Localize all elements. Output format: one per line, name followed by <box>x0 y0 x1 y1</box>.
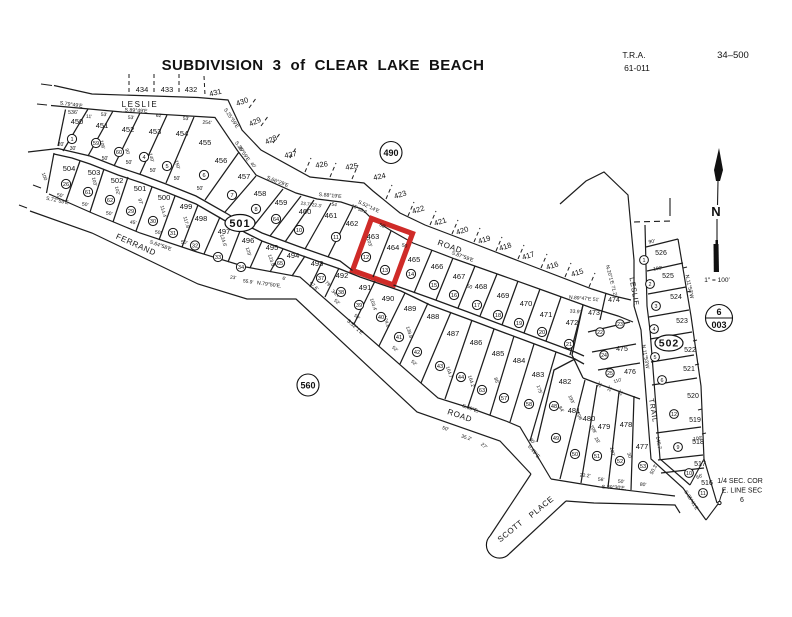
svg-text:456: 456 <box>215 156 228 165</box>
svg-text:473: 473 <box>588 310 600 317</box>
svg-text:21: 21 <box>566 342 572 348</box>
svg-text:54: 54 <box>331 202 337 209</box>
svg-text:453: 453 <box>149 127 162 136</box>
svg-text:42: 42 <box>414 350 420 356</box>
svg-text:35.2': 35.2' <box>460 434 472 443</box>
svg-text:502: 502 <box>111 176 124 185</box>
svg-text:1/4 SEC. COR: 1/4 SEC. COR <box>717 478 763 485</box>
svg-text:11: 11 <box>700 491 706 497</box>
svg-text:62': 62' <box>156 113 163 119</box>
svg-text:5: 5 <box>654 355 657 361</box>
svg-text:110': 110' <box>613 377 622 384</box>
svg-text:40: 40 <box>378 315 384 321</box>
svg-text:50: 50 <box>572 452 578 458</box>
svg-text:491: 491 <box>359 283 372 292</box>
svg-text:40': 40' <box>248 161 257 170</box>
svg-text:N.89°47'E 51': N.89°47'E 51' <box>569 295 600 304</box>
svg-text:484: 484 <box>513 356 526 365</box>
svg-text:483: 483 <box>532 370 545 379</box>
svg-text:416: 416 <box>545 259 560 271</box>
svg-text:13: 13 <box>382 268 388 274</box>
svg-text:521: 521 <box>683 366 695 373</box>
svg-text:476: 476 <box>624 369 636 376</box>
svg-text:N: N <box>711 204 720 219</box>
svg-text:100: 100 <box>40 172 48 182</box>
svg-text:22': 22' <box>596 381 603 388</box>
svg-text:499: 499 <box>180 202 193 211</box>
svg-text:20': 20' <box>58 142 65 148</box>
svg-text:003: 003 <box>711 320 726 330</box>
svg-text:150': 150' <box>173 160 181 170</box>
svg-text:420: 420 <box>455 224 470 236</box>
svg-text:50': 50' <box>56 193 63 200</box>
svg-text:100': 100' <box>653 265 663 272</box>
svg-text:SUBDIVISION 3 of CLEAR LAK: SUBDIVISION 3 of CLEAR LAKE BEACH <box>162 57 485 74</box>
svg-text:455: 455 <box>199 138 212 147</box>
svg-text:503: 503 <box>88 168 101 177</box>
svg-text:480: 480 <box>583 414 596 423</box>
svg-text:129': 129' <box>244 247 252 257</box>
svg-text:24: 24 <box>601 353 607 359</box>
svg-text:30: 30 <box>150 219 156 225</box>
svg-text:458: 458 <box>254 189 267 198</box>
svg-text:472: 472 <box>566 318 579 327</box>
svg-text:30': 30' <box>70 146 77 152</box>
svg-text:462: 462 <box>346 219 359 228</box>
svg-text:59: 59 <box>93 141 99 147</box>
svg-text:524: 524 <box>670 294 682 301</box>
svg-text:421: 421 <box>433 215 448 227</box>
svg-text:464: 464 <box>387 243 400 252</box>
svg-text:103.4': 103.4' <box>368 298 378 312</box>
svg-text:423: 423 <box>393 188 408 200</box>
svg-text:64: 64 <box>273 217 279 223</box>
svg-text:N.20°1'E 71.2': N.20°1'E 71.2' <box>604 265 618 297</box>
svg-text:6: 6 <box>661 378 664 384</box>
svg-text:19: 19 <box>516 321 522 327</box>
svg-text:14: 14 <box>408 272 414 278</box>
svg-text:56': 56' <box>598 477 605 484</box>
svg-text:N.79°50'E.: N.79°50'E. <box>256 280 281 289</box>
svg-text:50': 50' <box>126 160 133 166</box>
svg-text:425: 425 <box>345 161 359 172</box>
svg-text:48: 48 <box>551 404 557 410</box>
svg-text:39: 39 <box>356 303 362 309</box>
svg-text:102': 102' <box>113 186 121 196</box>
svg-text:6: 6 <box>716 307 721 317</box>
svg-text:50': 50' <box>618 479 625 486</box>
svg-text:97': 97' <box>136 198 143 206</box>
svg-text:6': 6' <box>282 276 286 282</box>
svg-text:522: 522 <box>684 347 696 354</box>
svg-text:52: 52 <box>617 459 623 465</box>
svg-text:494: 494 <box>287 251 300 260</box>
svg-text:498: 498 <box>195 214 208 223</box>
svg-text:492: 492 <box>336 271 349 280</box>
svg-text:60: 60 <box>116 150 122 156</box>
svg-text:2: 2 <box>649 282 652 288</box>
svg-text:E. LINE SEC: E. LINE SEC <box>722 488 762 495</box>
svg-text:65: 65 <box>277 261 283 267</box>
svg-text:475: 475 <box>616 346 628 353</box>
svg-text:450: 450 <box>71 117 84 126</box>
svg-text:493: 493 <box>311 259 324 268</box>
svg-text:482: 482 <box>559 377 572 386</box>
svg-text:429: 429 <box>247 115 262 128</box>
svg-text:52': 52' <box>332 298 341 307</box>
svg-text:454: 454 <box>176 129 189 138</box>
svg-text:536': 536' <box>68 110 78 116</box>
svg-text:164.7': 164.7' <box>444 366 454 380</box>
svg-text:519: 519 <box>689 417 701 424</box>
svg-text:1: 1 <box>643 258 646 264</box>
svg-text:TRAIL: TRAIL <box>647 398 660 424</box>
svg-text:S.35°41'E: S.35°41'E <box>682 489 699 512</box>
svg-text:S.89°49'E: S.89°49'E <box>124 107 148 114</box>
svg-text:45': 45' <box>129 220 136 227</box>
svg-text:23: 23 <box>617 322 623 328</box>
svg-text:419: 419 <box>477 233 492 245</box>
svg-text:426: 426 <box>315 159 329 170</box>
svg-text:427: 427 <box>284 149 298 160</box>
svg-text:17: 17 <box>474 303 480 309</box>
svg-text:502: 502 <box>659 338 680 350</box>
svg-text:52': 52' <box>390 345 399 354</box>
svg-text:465: 465 <box>408 255 421 264</box>
svg-text:90': 90' <box>123 148 130 156</box>
svg-text:53': 53' <box>128 115 135 121</box>
svg-text:20: 20 <box>539 330 545 336</box>
svg-text:63: 63 <box>479 388 485 394</box>
svg-text:478: 478 <box>620 420 633 429</box>
svg-text:6: 6 <box>740 497 744 504</box>
svg-text:27': 27' <box>479 442 488 451</box>
svg-text:15: 15 <box>431 283 437 289</box>
svg-text:50': 50' <box>154 230 161 237</box>
svg-text:468: 468 <box>475 282 488 291</box>
svg-text:52': 52' <box>409 359 418 368</box>
svg-text:139.8': 139.8' <box>404 326 414 340</box>
svg-text:34: 34 <box>238 265 244 271</box>
svg-text:490: 490 <box>383 148 398 158</box>
svg-text:460: 460 <box>299 207 312 216</box>
svg-text:525: 525 <box>662 273 674 280</box>
svg-text:33.9': 33.9' <box>570 309 581 316</box>
svg-text:415: 415 <box>570 266 585 278</box>
svg-text:11: 11 <box>333 235 339 241</box>
svg-text:117.8': 117.8' <box>181 216 190 230</box>
svg-text:S.88°19'E: S.88°19'E <box>318 192 342 200</box>
svg-text:12: 12 <box>671 412 677 418</box>
svg-text:16: 16 <box>451 293 457 299</box>
svg-text:44: 44 <box>458 375 464 381</box>
svg-text:474: 474 <box>608 297 620 304</box>
svg-text:451: 451 <box>96 121 109 130</box>
svg-text:PLACE: PLACE <box>527 494 555 519</box>
svg-text:61: 61 <box>85 190 91 196</box>
svg-text:434: 434 <box>136 85 149 94</box>
svg-text:114.4': 114.4' <box>158 205 167 219</box>
svg-text:4: 4 <box>653 327 656 333</box>
svg-text:34–500: 34–500 <box>717 50 749 61</box>
svg-text:29: 29 <box>128 209 134 215</box>
svg-text:9: 9 <box>677 445 680 451</box>
svg-text:50': 50' <box>81 202 88 209</box>
svg-text:432: 432 <box>185 85 198 94</box>
svg-text:49: 49 <box>553 436 559 442</box>
svg-text:488: 488 <box>427 312 440 321</box>
svg-text:4: 4 <box>142 155 145 161</box>
svg-text:31: 31 <box>170 231 176 237</box>
svg-text:LESLIE: LESLIE <box>627 276 641 306</box>
svg-text:22.2': 22.2' <box>580 473 591 480</box>
svg-text:422: 422 <box>411 203 426 215</box>
svg-text:50': 50' <box>102 156 109 162</box>
svg-text:457: 457 <box>238 172 251 181</box>
svg-text:485: 485 <box>492 349 505 358</box>
svg-text:6: 6 <box>202 173 205 179</box>
svg-text:470: 470 <box>520 299 533 308</box>
svg-text:424: 424 <box>372 171 386 182</box>
svg-text:32: 32 <box>192 244 198 250</box>
svg-text:53': 53' <box>101 112 108 118</box>
svg-text:37: 37 <box>318 276 324 282</box>
svg-text:23': 23' <box>230 275 237 282</box>
svg-text:103': 103' <box>90 177 98 187</box>
svg-text:52': 52' <box>352 313 361 322</box>
svg-text:477: 477 <box>636 442 649 451</box>
svg-text:254': 254' <box>202 120 212 126</box>
svg-text:12: 12 <box>363 255 369 261</box>
svg-text:523: 523 <box>676 318 688 325</box>
svg-text:T.R.A.: T.R.A. <box>622 50 645 60</box>
svg-text:433: 433 <box>161 85 174 94</box>
svg-text:53': 53' <box>183 116 190 122</box>
svg-text:471: 471 <box>540 310 553 319</box>
svg-text:58: 58 <box>526 402 532 408</box>
svg-text:467: 467 <box>453 272 466 281</box>
svg-text:175': 175' <box>535 384 544 395</box>
svg-text:489: 489 <box>404 304 417 313</box>
svg-text:53: 53 <box>640 464 646 470</box>
svg-text:50': 50' <box>441 425 449 433</box>
svg-text:11': 11' <box>86 114 92 120</box>
svg-text:85': 85' <box>492 377 500 385</box>
svg-text:469: 469 <box>497 291 510 300</box>
svg-text:18: 18 <box>495 313 501 319</box>
svg-text:67.6': 67.6' <box>308 281 320 293</box>
svg-text:517: 517 <box>694 461 706 468</box>
svg-text:428: 428 <box>263 133 278 146</box>
svg-text:22': 22' <box>617 389 624 396</box>
svg-text:57: 57 <box>501 396 507 402</box>
svg-text:26: 26 <box>63 182 69 188</box>
svg-text:43: 43 <box>437 364 443 370</box>
svg-text:1: 1 <box>70 137 73 143</box>
svg-text:500: 500 <box>158 193 171 202</box>
svg-text:80': 80' <box>640 482 647 489</box>
svg-text:495: 495 <box>266 243 279 252</box>
svg-text:50': 50' <box>180 240 187 247</box>
svg-text:466: 466 <box>431 262 444 271</box>
svg-text:430: 430 <box>235 95 250 108</box>
svg-text:38: 38 <box>338 290 344 296</box>
svg-text:25: 25 <box>607 371 613 377</box>
svg-text:193': 193' <box>566 394 575 405</box>
svg-text:50': 50' <box>105 211 112 218</box>
svg-text:51: 51 <box>594 454 600 460</box>
svg-text:8: 8 <box>254 207 257 213</box>
svg-text:200': 200' <box>608 447 616 457</box>
svg-text:479: 479 <box>598 422 611 431</box>
svg-text:10: 10 <box>296 228 302 234</box>
svg-text:SCOTT: SCOTT <box>496 518 525 544</box>
svg-text:487: 487 <box>447 329 460 338</box>
svg-text:61-011: 61-011 <box>624 63 650 73</box>
svg-text:7: 7 <box>230 193 233 199</box>
svg-text:22: 22 <box>597 330 603 336</box>
svg-text:S.66°29'E: S.66°29'E <box>266 175 290 189</box>
svg-text:41: 41 <box>396 335 402 341</box>
svg-text:50': 50' <box>174 176 181 182</box>
svg-text:123.5': 123.5' <box>266 254 276 268</box>
svg-text:490: 490 <box>382 294 395 303</box>
svg-text:486: 486 <box>470 338 483 347</box>
svg-text:146.7: 146.7 <box>654 436 662 450</box>
svg-text:N.11°53'W: N.11°53'W <box>640 344 650 369</box>
svg-text:3: 3 <box>655 304 658 310</box>
svg-text:526: 526 <box>655 250 667 257</box>
svg-text:520: 520 <box>687 393 699 400</box>
svg-text:431: 431 <box>208 87 222 99</box>
svg-text:417: 417 <box>521 249 536 261</box>
svg-text:461: 461 <box>325 211 338 220</box>
svg-text:164.2': 164.2' <box>466 375 476 389</box>
svg-text:62: 62 <box>107 198 113 204</box>
svg-text:452: 452 <box>122 125 135 134</box>
svg-text:459: 459 <box>275 198 288 207</box>
svg-text:501: 501 <box>229 218 250 230</box>
svg-text:10: 10 <box>686 471 692 477</box>
svg-text:516: 516 <box>701 480 713 487</box>
svg-text:1″ = 100′: 1″ = 100′ <box>704 277 730 284</box>
svg-text:496: 496 <box>242 236 255 245</box>
svg-text:S.89°30'E.: S.89°30'E. <box>602 484 627 491</box>
svg-text:50': 50' <box>150 168 157 174</box>
svg-text:50: 50 <box>466 283 473 290</box>
svg-text:560: 560 <box>300 381 315 391</box>
svg-text:33: 33 <box>215 255 221 261</box>
svg-text:50': 50' <box>197 186 204 192</box>
svg-text:S.79°49'E: S.79°49'E <box>59 100 83 109</box>
svg-text:501: 501 <box>134 184 147 193</box>
svg-text:22': 22' <box>606 385 613 392</box>
svg-text:S.49°E.: S.49°E. <box>526 444 542 461</box>
svg-text:55.9': 55.9' <box>243 278 254 285</box>
svg-text:28': 28' <box>593 436 601 444</box>
svg-text:504: 504 <box>63 164 76 173</box>
svg-text:5: 5 <box>165 164 168 170</box>
svg-text:90': 90' <box>648 239 655 246</box>
